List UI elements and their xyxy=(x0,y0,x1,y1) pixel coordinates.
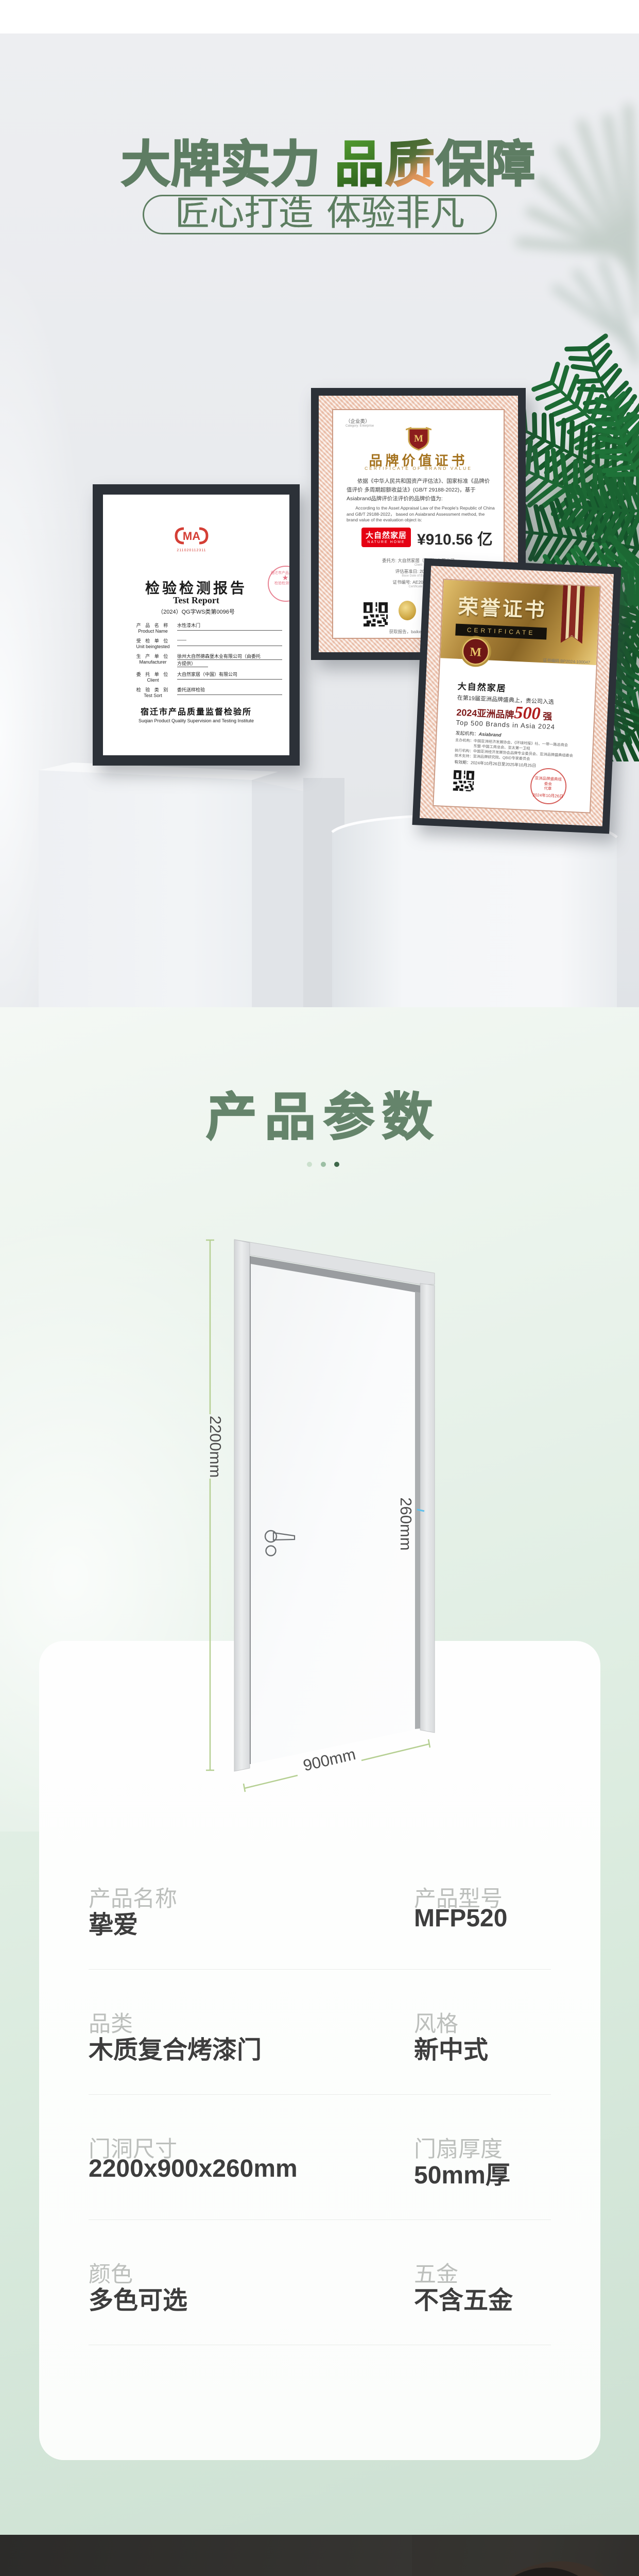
svg-text:MA: MA xyxy=(183,530,200,543)
svg-text:M: M xyxy=(414,433,423,444)
svg-text:大牌实力: 大牌实力 xyxy=(121,137,321,191)
svg-text:M: M xyxy=(470,646,482,659)
svg-text:产品参数: 产品参数 xyxy=(206,1088,441,1145)
svg-text:2200mm: 2200mm xyxy=(206,1416,224,1478)
svg-text:质: 质 xyxy=(385,137,435,191)
svg-text:260mm: 260mm xyxy=(397,1497,415,1550)
svg-text:品: 品 xyxy=(335,137,384,191)
